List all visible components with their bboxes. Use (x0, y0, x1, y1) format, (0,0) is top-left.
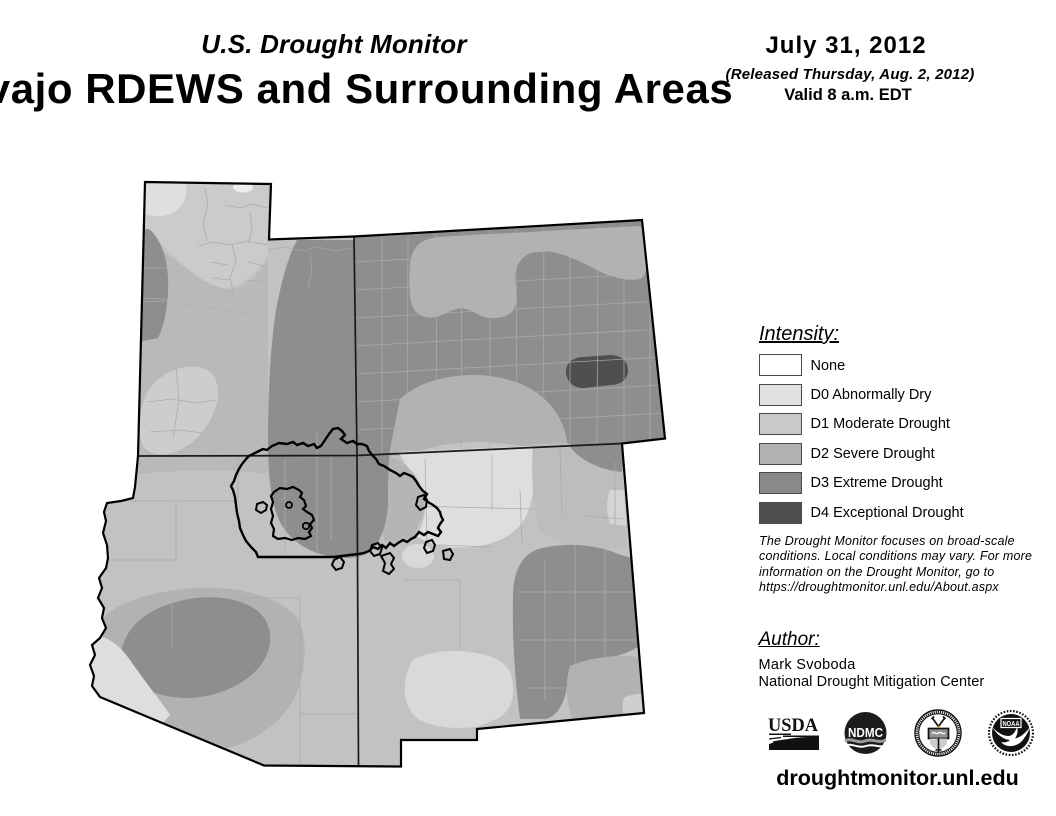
svg-text:NDMC: NDMC (848, 725, 884, 740)
svg-text:USDA: USDA (768, 715, 818, 736)
svg-text:NOAA: NOAA (1003, 719, 1020, 728)
